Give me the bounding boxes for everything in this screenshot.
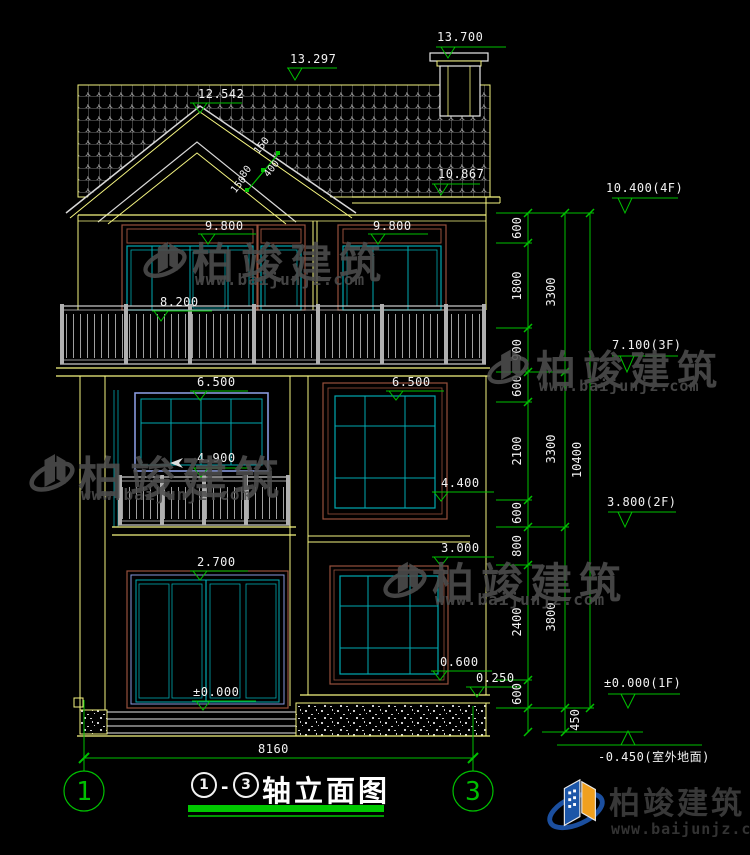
dim-2100: 2100 xyxy=(510,437,524,466)
watermark-right-middle: 柏竣建筑 www.baijunjz.com xyxy=(382,550,642,612)
elev-8200: 8.200 xyxy=(160,295,199,309)
elev-13700: 13.700 xyxy=(437,30,483,44)
elev-4400: 4.400 xyxy=(441,476,480,490)
dim-1800: 1800 xyxy=(510,272,524,301)
cad-elevation-drawing: 13.700 13.297 12.542 10.867 9.800 9.800 … xyxy=(0,0,750,855)
storey-2f: 3.800(2F) xyxy=(607,495,677,509)
title-axis-a: 1 xyxy=(191,772,217,798)
elev-6500-left: 6.500 xyxy=(197,375,236,389)
drawing-title: 轴立面图 xyxy=(262,768,390,810)
title-dash: - xyxy=(221,777,228,798)
company-logo: 柏竣建筑 www.baijunjz.com xyxy=(545,772,750,852)
watermark-logo-icon xyxy=(382,552,428,606)
watermark-logo-icon xyxy=(28,444,76,500)
elev-12542: 12.542 xyxy=(198,87,244,101)
storey-ground: -0.450(室外地面) xyxy=(598,748,710,765)
watermark-left: 柏竣建筑 www.baijunjz.com xyxy=(28,442,288,506)
watermark-right-top: 柏竣建筑 www.baijunjz.com xyxy=(486,338,746,398)
roof xyxy=(66,53,500,224)
company-logo-url: www.baijunjz.com xyxy=(611,820,750,838)
title-axis-b: 3 xyxy=(233,772,259,798)
watermark-center-top: 柏竣建筑 www.baijunjz.com xyxy=(142,230,402,292)
dim-450: 450 xyxy=(568,709,582,731)
elev-13297: 13.297 xyxy=(290,52,336,66)
floor-2-3 xyxy=(80,376,486,710)
company-logo-brand: 柏竣建筑 xyxy=(609,778,745,823)
dim-3300-b: 3300 xyxy=(544,435,558,464)
elev-10867: 10.867 xyxy=(438,167,484,181)
watermark-url: www.baijunjz.com xyxy=(81,485,251,504)
axis-bubble-3: 3 xyxy=(465,777,481,807)
dim-600-c: 600 xyxy=(510,502,524,524)
watermark-logo-icon xyxy=(142,232,188,286)
storey-1f: ±0.000(1F) xyxy=(604,676,681,690)
watermark-url: www.baijunjz.com xyxy=(435,590,605,609)
elev-6500-right: 6.500 xyxy=(392,375,431,389)
dim-total-height: 10400 xyxy=(570,442,584,478)
axis-bubble-1: 1 xyxy=(76,777,92,807)
drawing-linework xyxy=(0,0,750,855)
watermark-url: www.baijunjz.com xyxy=(195,270,365,289)
elev-0250: 0.250 xyxy=(476,671,515,685)
elev-0600: 0.600 xyxy=(440,655,479,669)
elev-2700: 2.700 xyxy=(197,555,236,569)
dim-600-d: 600 xyxy=(510,683,524,705)
watermark-url: www.baijunjz.com xyxy=(539,377,700,395)
dim-600-a: 600 xyxy=(510,217,524,239)
dim-total-width: 8160 xyxy=(258,742,289,756)
balcony-railing-3f xyxy=(56,304,490,376)
dim-3300-a: 3300 xyxy=(544,278,558,307)
company-logo-icon xyxy=(545,772,607,838)
elev-0000: ±0.000 xyxy=(193,685,239,699)
window-2f-right xyxy=(323,383,447,519)
watermark-logo-icon xyxy=(486,340,530,392)
storey-4f: 10.400(4F) xyxy=(606,181,683,195)
